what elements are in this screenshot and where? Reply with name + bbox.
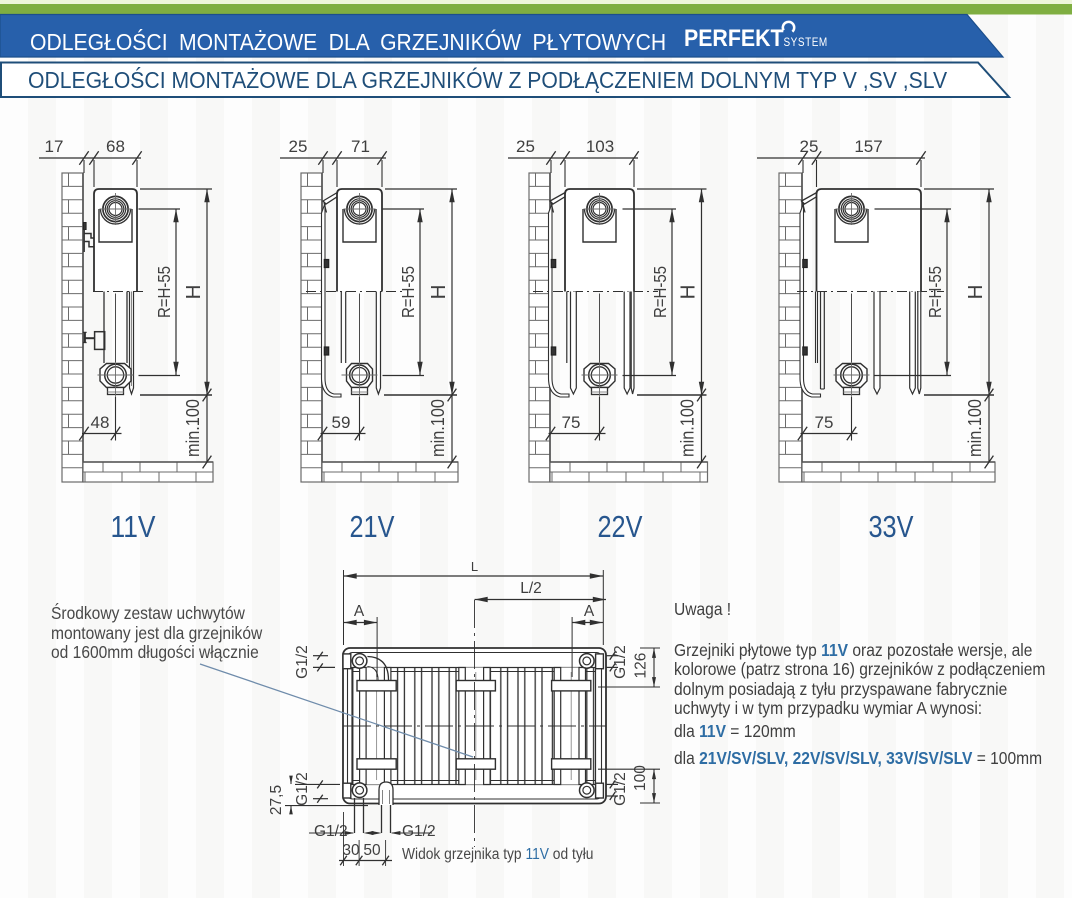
svg-text:71: 71 bbox=[351, 137, 370, 156]
svg-text:25: 25 bbox=[516, 137, 535, 156]
svg-text:25: 25 bbox=[289, 137, 308, 156]
svg-text:27,5: 27,5 bbox=[268, 785, 285, 815]
svg-text:48: 48 bbox=[91, 413, 110, 432]
svg-text:G1/2: G1/2 bbox=[612, 645, 629, 679]
svg-text:25: 25 bbox=[800, 137, 819, 156]
svg-text:L: L bbox=[471, 559, 478, 574]
svg-text:126: 126 bbox=[633, 653, 650, 679]
svg-text:H: H bbox=[427, 285, 450, 300]
svg-text:G1/2: G1/2 bbox=[612, 772, 629, 806]
svg-text:min.100: min.100 bbox=[428, 399, 448, 457]
svg-text:R=H-55: R=H-55 bbox=[650, 266, 670, 318]
svg-text:G1/2: G1/2 bbox=[314, 823, 348, 840]
svg-text:G1/2: G1/2 bbox=[294, 772, 311, 806]
svg-text:min.100: min.100 bbox=[678, 399, 698, 457]
svg-text:75: 75 bbox=[562, 413, 581, 432]
svg-text:100: 100 bbox=[632, 765, 649, 791]
svg-text:17: 17 bbox=[45, 137, 64, 156]
svg-text:H: H bbox=[677, 285, 700, 300]
svg-text:H: H bbox=[182, 285, 205, 300]
svg-text:157: 157 bbox=[854, 137, 882, 156]
svg-text:G1/2: G1/2 bbox=[402, 823, 436, 840]
svg-text:R=H-55: R=H-55 bbox=[398, 266, 418, 318]
svg-text:68: 68 bbox=[106, 137, 125, 156]
svg-text:59: 59 bbox=[332, 413, 351, 432]
svg-text:L/2: L/2 bbox=[520, 580, 542, 597]
svg-text:A: A bbox=[584, 603, 595, 620]
svg-text:33V: 33V bbox=[869, 509, 914, 544]
svg-text:min.100: min.100 bbox=[965, 399, 985, 457]
svg-text:30: 30 bbox=[342, 842, 360, 859]
svg-text:22V: 22V bbox=[598, 509, 643, 544]
svg-text:G1/2: G1/2 bbox=[294, 645, 311, 679]
svg-text:21V: 21V bbox=[350, 509, 395, 544]
svg-text:H: H bbox=[964, 285, 987, 300]
svg-text:11V: 11V bbox=[111, 509, 156, 544]
svg-text:A: A bbox=[354, 603, 365, 620]
svg-text:R=H-55: R=H-55 bbox=[154, 266, 174, 318]
svg-text:75: 75 bbox=[815, 413, 834, 432]
svg-text:50: 50 bbox=[363, 842, 381, 859]
svg-text:min.100: min.100 bbox=[183, 399, 203, 457]
svg-text:R=H-55: R=H-55 bbox=[925, 266, 945, 318]
svg-text:103: 103 bbox=[586, 137, 614, 156]
